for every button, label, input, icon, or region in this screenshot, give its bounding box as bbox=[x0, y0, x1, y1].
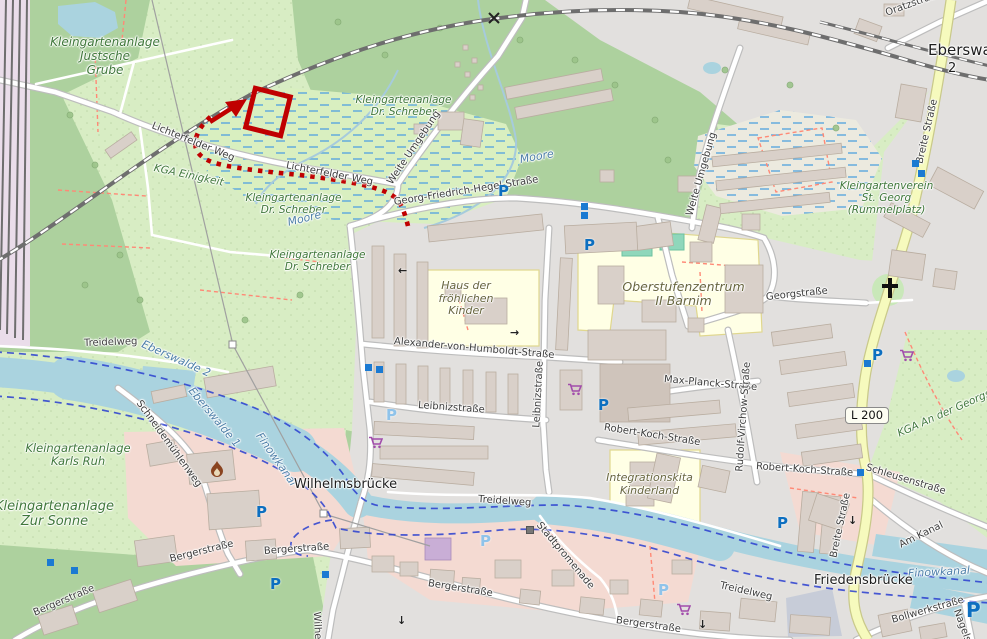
bus-stop-icon bbox=[918, 170, 925, 177]
bus-stop-icon bbox=[581, 203, 588, 210]
parking-icon: P bbox=[480, 532, 491, 550]
parking-icon: P bbox=[777, 514, 788, 532]
parking-icon: P bbox=[598, 396, 609, 414]
map-viewport[interactable]: Kleingartenanlage Justsche Grube Kleinga… bbox=[0, 0, 987, 639]
parking-icon: P bbox=[584, 236, 595, 254]
parking-icon: P bbox=[658, 581, 669, 599]
bus-stop-icon bbox=[71, 567, 78, 574]
bus-stop-icon bbox=[376, 366, 383, 373]
one-way-arrow-icon: ← bbox=[398, 264, 407, 277]
parking-icon: P bbox=[966, 598, 981, 622]
parking-icon: P bbox=[498, 182, 509, 200]
parking-icon: P bbox=[386, 406, 397, 424]
map-canvas[interactable] bbox=[0, 0, 987, 639]
bus-stop-icon bbox=[857, 469, 864, 476]
parking-icon: P bbox=[270, 575, 281, 593]
one-way-arrow-icon: → bbox=[510, 326, 519, 339]
bus-stop-icon bbox=[864, 360, 871, 367]
bus-stop-icon bbox=[581, 212, 588, 219]
bus-stop-icon bbox=[365, 364, 372, 371]
bus-stop-icon bbox=[912, 160, 919, 167]
monument-icon bbox=[526, 526, 534, 534]
one-way-arrow-icon: ↓ bbox=[397, 614, 406, 627]
bus-stop-icon bbox=[322, 571, 329, 578]
road-shield-l200: L 200 bbox=[845, 407, 889, 424]
bus-stop-icon bbox=[47, 559, 54, 566]
parking-icon: P bbox=[872, 346, 883, 364]
parking-icon: P bbox=[256, 503, 267, 521]
one-way-arrow-icon: ↓ bbox=[698, 618, 707, 631]
one-way-arrow-icon: ↓ bbox=[848, 514, 857, 527]
